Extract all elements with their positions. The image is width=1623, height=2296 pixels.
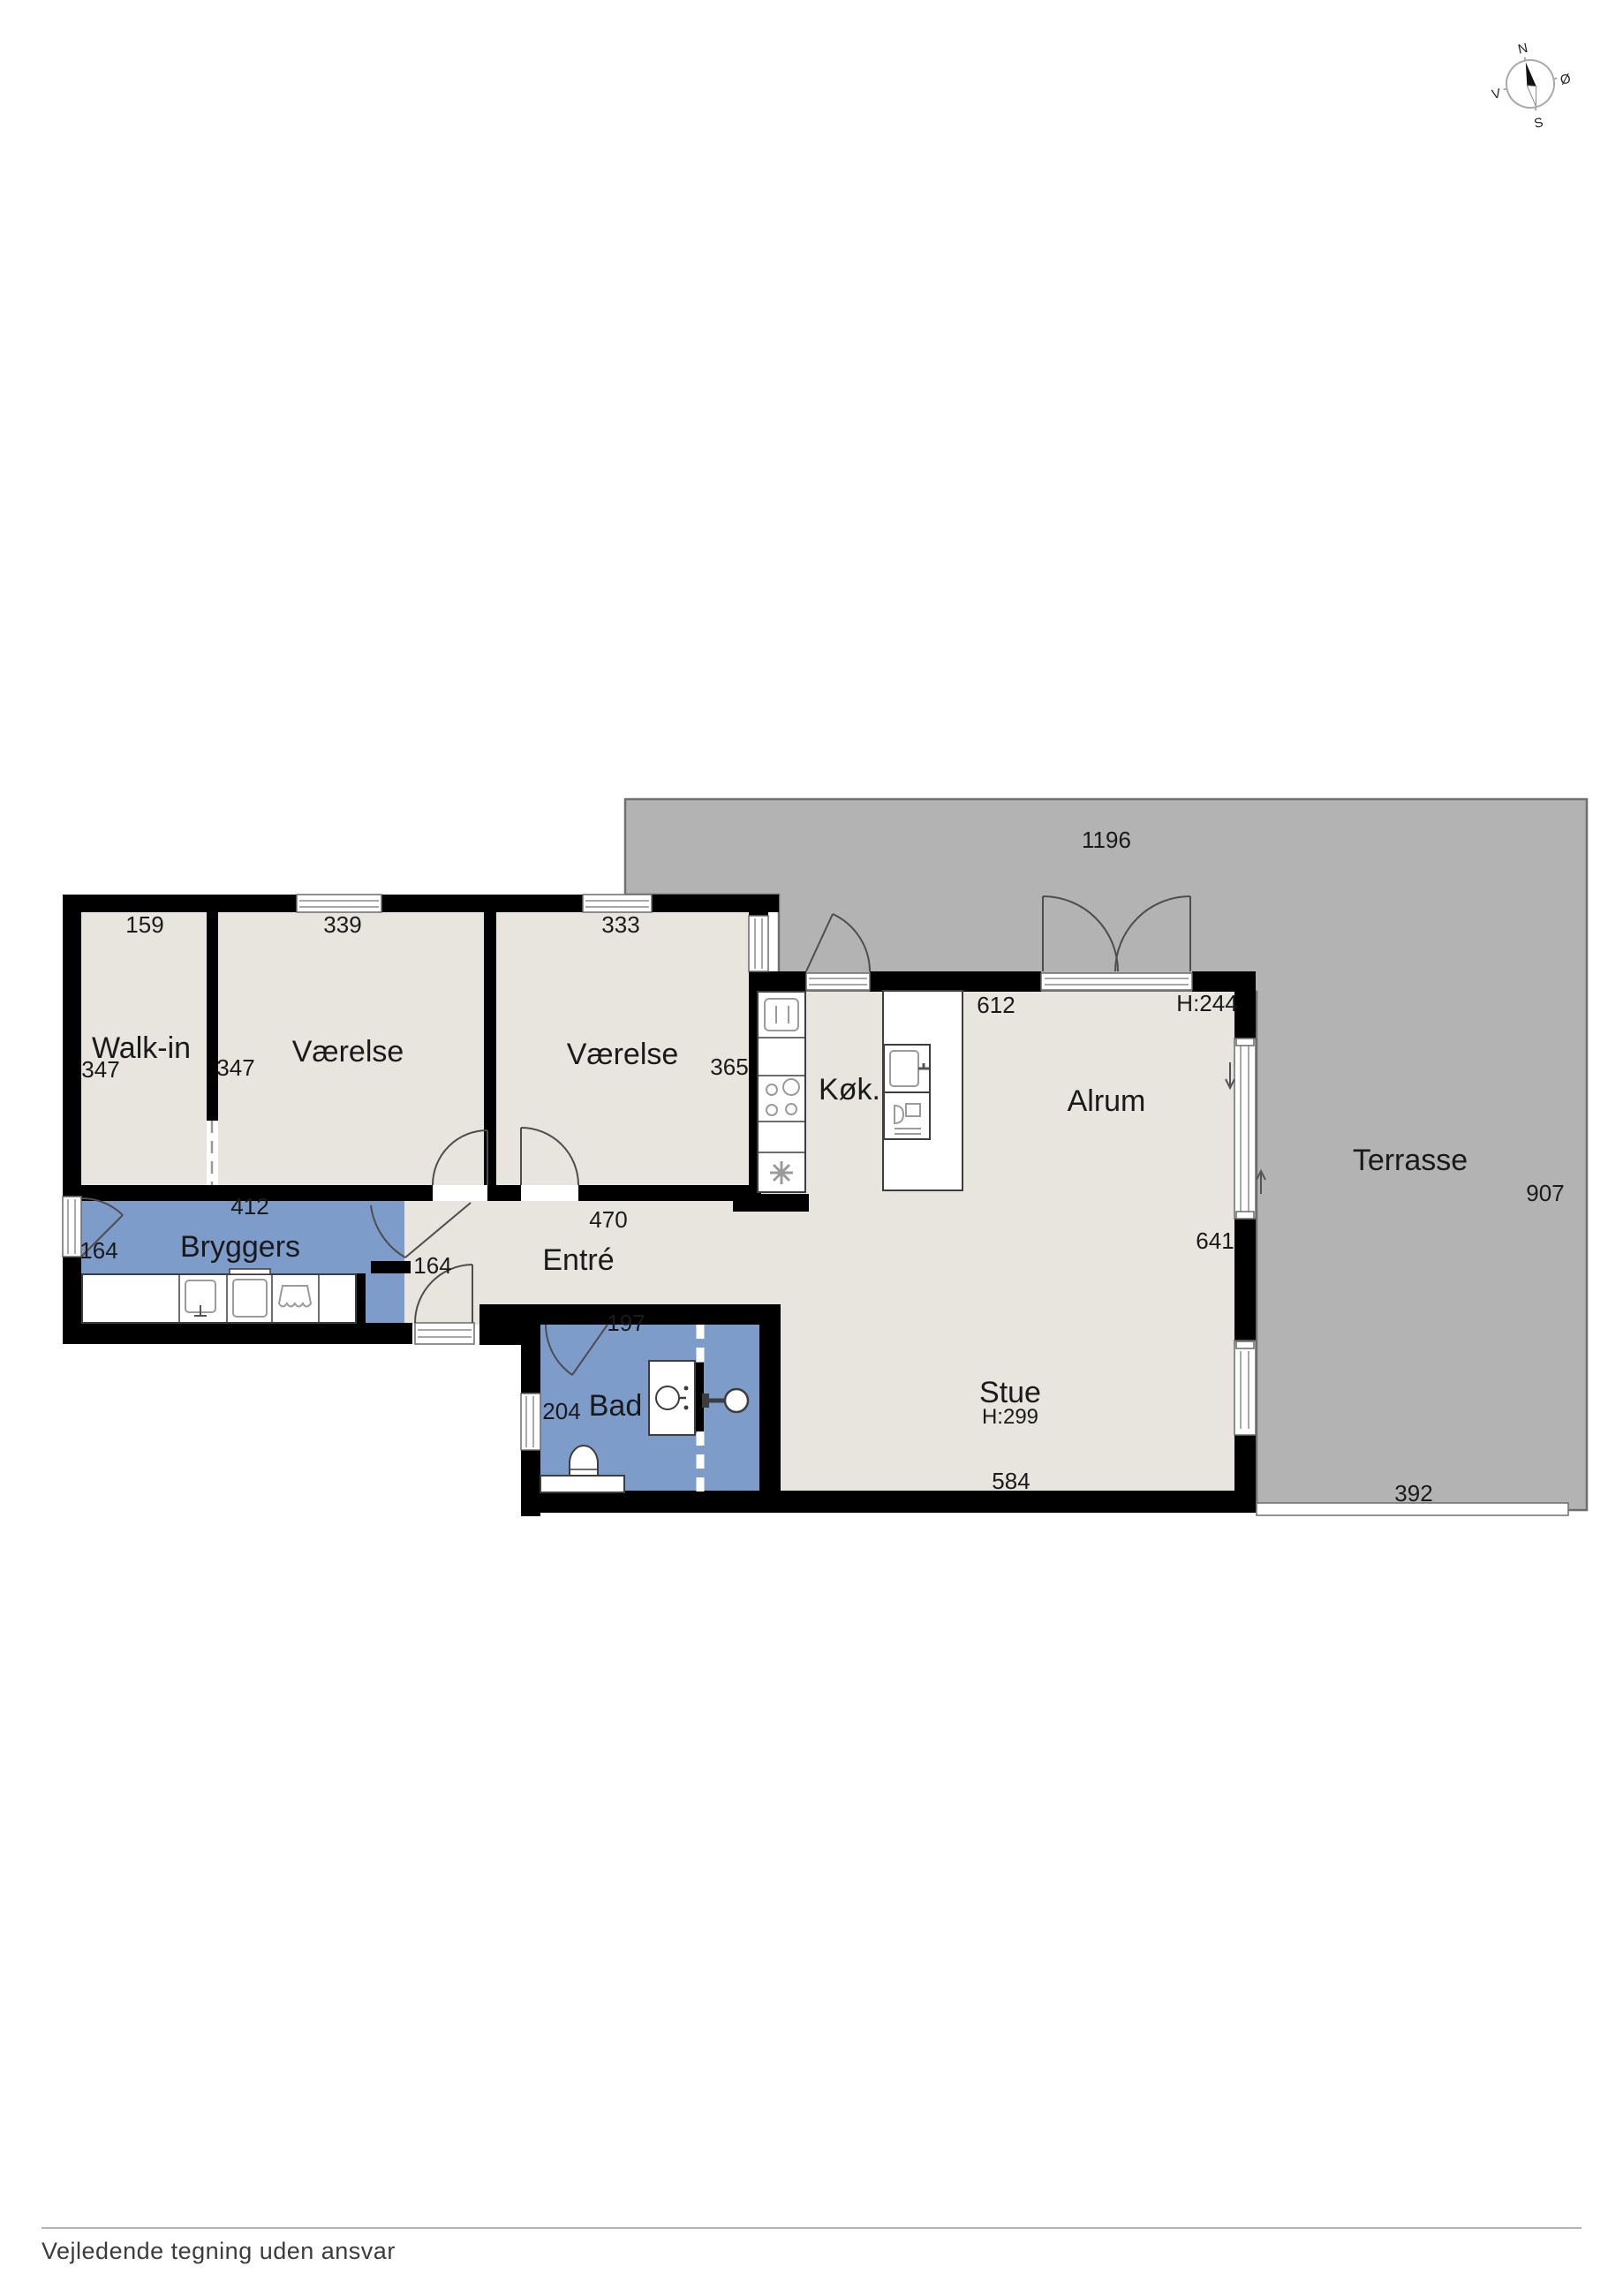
stue-width: 584 (992, 1468, 1030, 1494)
compass-needle-south (1527, 84, 1540, 108)
walkin-width: 159 (125, 911, 163, 938)
terrasse-depth: 907 (1526, 1180, 1564, 1206)
vaerelse1-width: 339 (323, 911, 361, 938)
bryggers-opening: 164 (413, 1252, 451, 1279)
entre-width: 470 (589, 1206, 627, 1233)
bryggers-label: Bryggers (180, 1230, 300, 1264)
threshold-kitchen-door (806, 973, 870, 990)
bad-width: 197 (607, 1310, 645, 1336)
vanity-sink-icon (649, 1361, 695, 1435)
window-bryggers-west (63, 1197, 81, 1257)
vaerelse2-depth: 365 (710, 1054, 748, 1080)
floor-plan-page: Walk-in 159 347 Værelse 339 347 Værelse … (0, 0, 1623, 2296)
stue-east-dim: 641 (1196, 1227, 1234, 1254)
entre-label: Entré (542, 1243, 614, 1277)
window-stue-east-upper (1234, 1038, 1256, 1219)
window-stue-east-lower (1234, 1341, 1256, 1435)
vaerelse2-label: Værelse (567, 1038, 679, 1071)
terrasse-width: 1196 (1082, 827, 1131, 853)
compass-w: V (1491, 86, 1502, 102)
vaerelse1-label: Værelse (292, 1035, 404, 1069)
compass-icon: N Ø S V (1483, 33, 1581, 139)
sliding-door-walkin (207, 1121, 218, 1185)
window-vaerelse2-east (749, 916, 768, 971)
footer-disclaimer: Vejledende tegning uden ansvar (42, 2238, 396, 2265)
stue-ceiling-height: H:299 (982, 1405, 1038, 1429)
koekken-label: Køk. (819, 1073, 880, 1106)
dishwasher-icon (884, 1092, 930, 1139)
threshold-double-door (1041, 973, 1192, 990)
compass-n: N (1517, 41, 1529, 57)
alrum-label: Alrum (1068, 1084, 1146, 1118)
bryggers-counter (82, 1269, 356, 1323)
compass-needle-north (1522, 61, 1536, 87)
vaerelse2-width: 333 (601, 911, 639, 938)
vaerelse1-depth: 347 (216, 1054, 254, 1081)
window-top-1 (297, 895, 381, 912)
footer-divider (42, 2227, 1581, 2229)
kitchen-appliance-column (758, 992, 805, 1192)
bryggers-width: 412 (230, 1193, 268, 1220)
window-top-2 (583, 895, 652, 912)
walkin-depth: 347 (81, 1056, 119, 1083)
terrasse-label: Terrasse (1353, 1144, 1468, 1177)
compass-s: S (1533, 115, 1544, 132)
terrasse-sill-dim: 392 (1394, 1480, 1432, 1507)
compass-e: Ø (1559, 72, 1572, 88)
alrum-ceiling-height: H:244 (1176, 990, 1237, 1016)
alrum-width: 612 (977, 992, 1015, 1018)
island-sink-icon (884, 1045, 930, 1092)
threshold-front-door (415, 1323, 474, 1344)
bad-depth: 204 (542, 1398, 580, 1424)
bad-label: Bad (589, 1389, 643, 1423)
kitchen-island (883, 991, 962, 1190)
window-bad-west (521, 1393, 540, 1450)
bryggers-depth: 164 (79, 1237, 117, 1264)
floor-plan-drawing: Walk-in 159 347 Værelse 339 347 Værelse … (0, 0, 1623, 2296)
